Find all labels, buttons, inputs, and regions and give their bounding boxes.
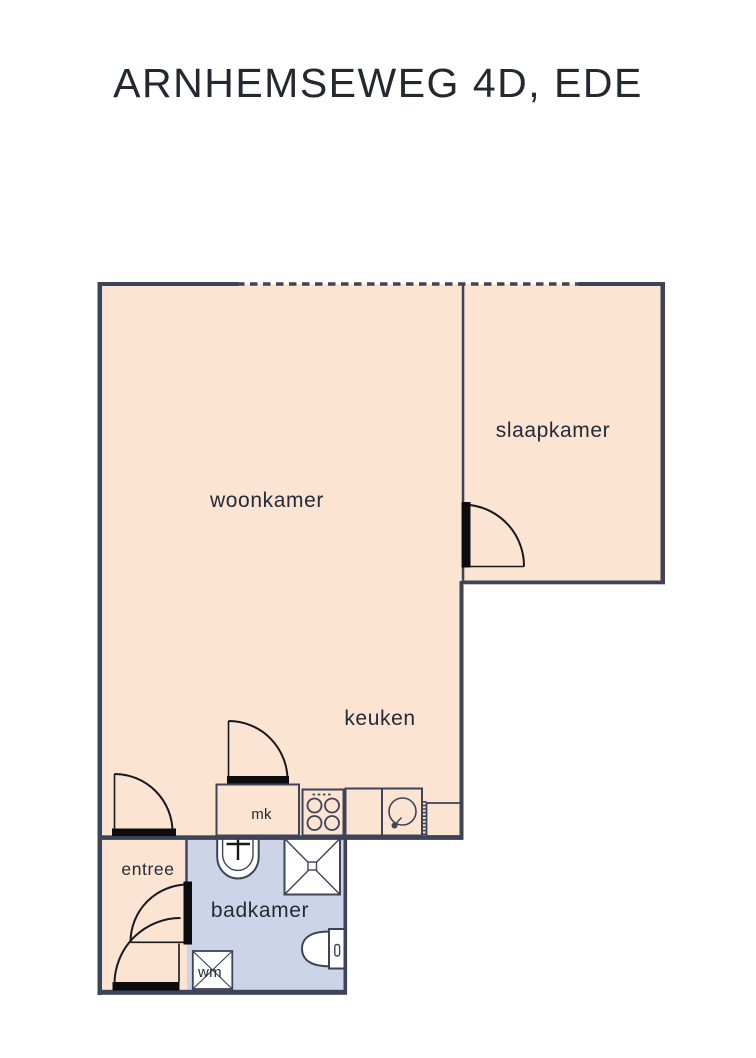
wall-right-badkamer: [344, 838, 348, 993]
slaapkamer-label: slaapkamer: [496, 419, 611, 442]
wall-top-right: [579, 282, 665, 286]
boiler-cabinet: [427, 803, 462, 836]
keuken-label: keuken: [344, 707, 415, 730]
shower-icon: [285, 839, 341, 895]
mk-label: mk: [251, 806, 272, 823]
stove-icon: [303, 790, 344, 836]
washbasin-icon: [217, 836, 259, 879]
entree-label: entree: [121, 859, 174, 879]
counter: [346, 789, 383, 836]
wall-bottom-slaapkamer: [462, 581, 666, 585]
wall-right-slaapkamer: [661, 282, 666, 584]
floor-plan: woonkamer slaapkamer keuken badkamer ent…: [0, 0, 756, 1058]
wall-right-keuken: [460, 581, 464, 839]
wall-left: [98, 282, 103, 995]
woonkamer-label: woonkamer: [209, 489, 324, 512]
sink-icon: [382, 789, 422, 836]
floor-plan-page: ARNHEMSEWEG 4D, EDE: [0, 0, 756, 1058]
toilet-icon: [302, 929, 346, 969]
wm-label: wm: [197, 964, 222, 981]
page-title: ARNHEMSEWEG 4D, EDE: [0, 60, 756, 107]
wall-bottom: [98, 990, 348, 995]
wall-top-left: [98, 282, 239, 286]
badkamer-label: badkamer: [211, 899, 309, 922]
